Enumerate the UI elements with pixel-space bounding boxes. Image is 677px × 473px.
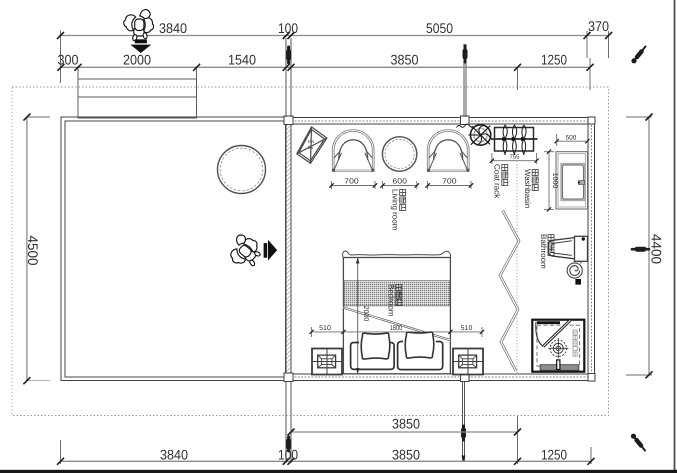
svg-text:3840: 3840 [160, 447, 188, 463]
svg-text:2000: 2000 [362, 306, 369, 322]
svg-text:HS: HS [308, 139, 314, 144]
svg-text:370: 370 [588, 18, 609, 34]
svg-text:1250: 1250 [541, 52, 567, 68]
svg-text:Bathroom: Bathroom [539, 234, 548, 269]
svg-text:700: 700 [442, 176, 457, 185]
svg-text:500: 500 [566, 134, 577, 141]
svg-text:3840: 3840 [159, 20, 187, 36]
svg-text:Living room: Living room [391, 189, 400, 231]
svg-text:300: 300 [58, 52, 79, 68]
svg-text:06: 06 [308, 145, 314, 150]
svg-text:700: 700 [344, 176, 359, 185]
svg-text:100: 100 [278, 20, 298, 36]
svg-text:3850: 3850 [391, 52, 419, 68]
svg-text:Washbasin: Washbasin [523, 169, 532, 208]
svg-text:4400: 4400 [649, 234, 665, 264]
svg-text:1800: 1800 [390, 325, 403, 332]
svg-text:600: 600 [392, 176, 407, 185]
svg-text:3850: 3850 [392, 447, 420, 463]
svg-text:Bedroom: Bedroom [387, 284, 396, 317]
svg-text:5050: 5050 [426, 20, 453, 36]
svg-text:100: 100 [278, 447, 298, 463]
svg-text:510: 510 [319, 325, 331, 332]
svg-text:4500: 4500 [25, 236, 41, 266]
svg-text:2000: 2000 [123, 52, 151, 68]
svg-text:Coat rack: Coat rack [493, 164, 502, 199]
svg-text:1250: 1250 [541, 447, 567, 463]
svg-text:1000: 1000 [551, 173, 558, 189]
svg-text:510: 510 [461, 325, 473, 332]
svg-text:1540: 1540 [228, 52, 256, 68]
svg-text:755: 755 [509, 154, 520, 161]
svg-text:3850: 3850 [392, 416, 420, 432]
